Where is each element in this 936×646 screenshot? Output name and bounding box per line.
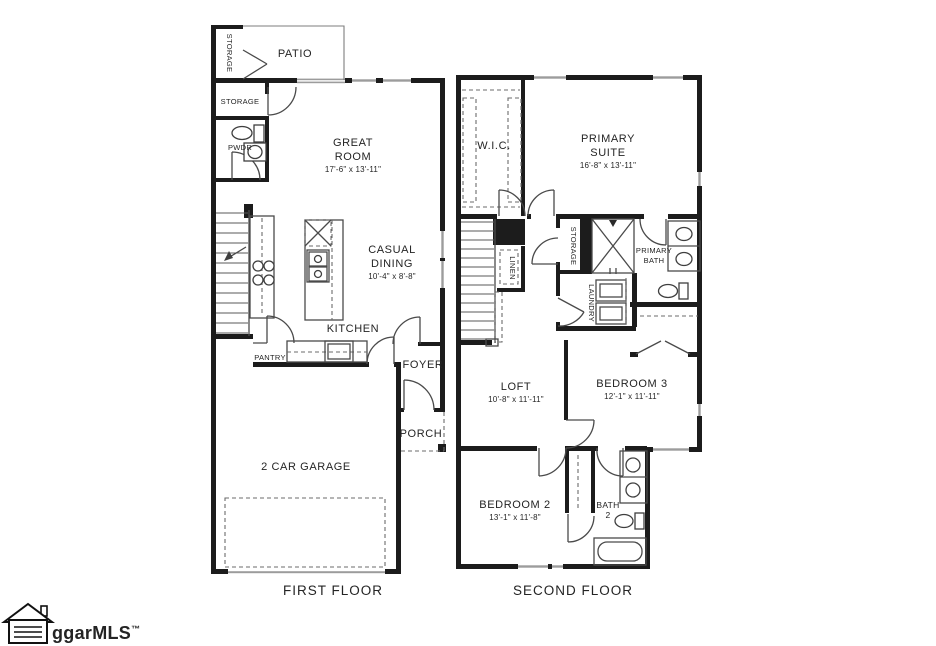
shower-icon [592, 219, 634, 274]
pantry-door-icon [253, 316, 294, 343]
toilet-icon [232, 125, 264, 142]
second-floor-plan: W.I.C. PRIMARY SUITE 16'-8" x 13'-11" ST… [456, 75, 702, 598]
svg-text:CASUAL: CASUAL [368, 244, 416, 256]
toilet-icon [615, 513, 644, 529]
svg-text:10'-8" x 11'-11": 10'-8" x 11'-11" [488, 395, 544, 404]
garage-label: 2 CAR GARAGE [261, 461, 351, 473]
svg-text:ROOM: ROOM [335, 151, 372, 163]
foyer-label: FOYER [403, 359, 444, 371]
svg-text:BEDROOM 2: BEDROOM 2 [479, 499, 550, 511]
svg-text:17'-6" x 13'-11": 17'-6" x 13'-11" [325, 165, 381, 174]
sink-icon [307, 250, 329, 282]
toilet-icon [659, 283, 689, 299]
patio-door-icon [243, 50, 267, 79]
linen-label: LINEN [508, 256, 517, 280]
laundry-label: LAUNDRY [587, 284, 596, 322]
svg-text:DINING: DINING [371, 258, 413, 270]
house-logo-icon [4, 604, 52, 643]
stairs-first-floor [216, 210, 249, 336]
kitchen-foyer-door-icon [367, 337, 394, 364]
primary-suite-label: PRIMARY SUITE 16'-8" x 13'-11" [580, 133, 636, 170]
loft-label: LOFT 10'-8" x 11'-11" [488, 381, 544, 404]
svg-text:BATH: BATH [596, 500, 619, 510]
svg-text:GREAT: GREAT [333, 137, 373, 149]
dining-foyer-door-icon [393, 317, 420, 344]
bedroom3-label: BEDROOM 3 12'-1" x 11'-11" [596, 378, 667, 401]
first-floor-plan: PATIO STORAGE STORAGE PWDR GREAT ROOM 17… [211, 25, 446, 598]
svg-text:10'-4" x 8'-8": 10'-4" x 8'-8" [368, 272, 416, 281]
svg-text:PRIMARY: PRIMARY [581, 133, 635, 145]
laundry-door-icon [558, 298, 584, 326]
pantry-label: PANTRY [254, 353, 286, 362]
svg-text:LOFT: LOFT [501, 381, 532, 393]
kitchen-lower-counter [287, 341, 367, 362]
wic-label: W.I.C. [477, 140, 511, 152]
bedroom2-label: BEDROOM 2 13'-1" x 11'-8" [479, 499, 550, 522]
pwdr-label: PWDR [228, 143, 252, 152]
first-floor-title: FIRST FLOOR [283, 583, 383, 598]
bedroom2-closet-door-icon [568, 514, 594, 542]
svg-text:2: 2 [605, 510, 610, 520]
bedroom3-door-icon [566, 420, 594, 448]
double-vanity-icon [620, 451, 647, 503]
floor-plan-image: PATIO STORAGE STORAGE PWDR GREAT ROOM 17… [0, 0, 936, 646]
casual-dining-label: CASUAL DINING 10'-4" x 8'-8" [368, 244, 416, 281]
kitchen-counter [250, 216, 274, 318]
stove-icon [253, 261, 274, 285]
storage-label: STORAGE [221, 97, 260, 106]
bathtub-icon [594, 538, 646, 565]
floor-plan-svg: PATIO STORAGE STORAGE PWDR GREAT ROOM 17… [0, 0, 936, 646]
garage-door-outline [225, 498, 385, 567]
second-floor-title: SECOND FLOOR [513, 583, 633, 598]
double-vanity-icon [668, 221, 700, 271]
front-door-icon [404, 380, 434, 410]
mls-watermark: ggarMLS™ [4, 604, 140, 643]
bath2-door-icon [597, 448, 623, 476]
svg-text:SUITE: SUITE [590, 147, 625, 159]
kitchen-island [305, 220, 343, 320]
porch-label: PORCH [400, 428, 443, 440]
svg-text:PRIMARY: PRIMARY [636, 246, 672, 255]
first-floor-walls [211, 25, 446, 574]
storage-label: STORAGE [569, 227, 578, 266]
watermark-text: ggarMLS™ [52, 623, 140, 643]
primary-bath-label: PRIMARY BATH [636, 246, 672, 265]
svg-text:12'-1" x 11'-11": 12'-1" x 11'-11" [604, 392, 660, 401]
svg-text:16'-8" x 13'-11": 16'-8" x 13'-11" [580, 161, 636, 170]
kitchen-label: KITCHEN [327, 323, 379, 335]
storage-door-icon [268, 87, 296, 115]
storage-door-icon [532, 238, 558, 264]
patio-storage-label: STORAGE [225, 34, 234, 73]
primary-bath-door-icon [640, 219, 666, 245]
patio-label: PATIO [278, 48, 312, 60]
svg-text:BEDROOM 3: BEDROOM 3 [596, 378, 667, 390]
bedroom2-door-icon [539, 448, 566, 476]
primary-suite-door-icon [528, 190, 554, 216]
svg-text:BATH: BATH [644, 256, 665, 265]
bedroom3-closet-doors-icon [636, 341, 690, 354]
washer-dryer-icon [596, 278, 626, 326]
great-room-label: GREAT ROOM 17'-6" x 13'-11" [325, 137, 381, 174]
svg-text:13'-1" x 11'-8": 13'-1" x 11'-8" [489, 513, 541, 522]
stair-rail [495, 292, 502, 342]
